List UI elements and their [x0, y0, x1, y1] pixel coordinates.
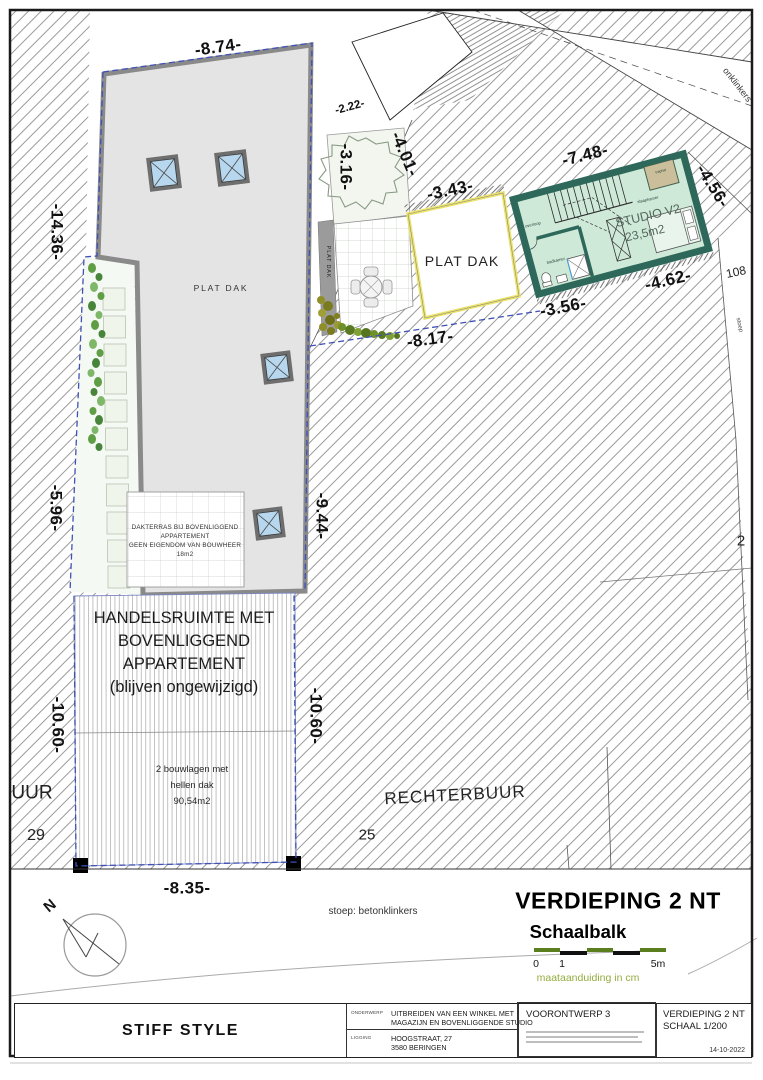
plat-dak-box-label: PLAT DAK [425, 254, 499, 268]
scale-tick-5m: 5m [651, 959, 666, 970]
dim-10-60-right: -10.60- [308, 688, 325, 745]
ligging-text: HOOGSTRAAT, 27 3580 BERINGEN [391, 1034, 452, 1052]
skylight [146, 154, 182, 192]
ligging-label: LIGGING [351, 1035, 372, 1040]
onderwerp-label: ONDERWERP [351, 1010, 383, 1015]
dim-5-96: -5.96- [48, 485, 65, 532]
skylight [214, 149, 250, 187]
dim-3-16: -3.16- [338, 144, 355, 191]
fase-text: VOORONTWERP 3 [526, 1010, 610, 1019]
fine-print-line [526, 1041, 642, 1043]
linkerbuur-label: UUR [11, 784, 52, 803]
plat-dak-strip-label: PLAT DAK [324, 246, 330, 279]
house-number-29: 29 [27, 828, 45, 844]
dakterras-note: DAKTERRAS BIJ BOVENLIGGEND APPARTEMENT G… [120, 523, 250, 559]
dim-14-36: -14.36- [49, 204, 66, 261]
drawing-title: VERDIEPING 2 NT [515, 890, 721, 913]
scale-tick-0: 0 [533, 959, 539, 970]
scale-bar [534, 948, 667, 956]
stoep-note: stoep: betonklinkers [329, 907, 418, 917]
fine-print-line [526, 1031, 644, 1033]
plat-dak-roof-label: PLAT DAK [194, 284, 249, 293]
skylight [252, 506, 286, 540]
sheet-date: 14-10-2022 [663, 1046, 745, 1055]
maataanduiding-note: maataanduiding in cm [537, 973, 640, 984]
plan-sheet: -8.74- -3.16- -2.22- -4.01- -3.43- -7.48… [0, 0, 763, 1080]
scale-tick-1: 1 [559, 959, 565, 970]
skylight [260, 350, 294, 384]
plat-dak-box-shape [404, 184, 519, 318]
sheet-name: VERDIEPING 2 NT [663, 1010, 745, 1019]
fase-box: VOORONTWERP 3 [517, 1002, 656, 1057]
title-block: STIFF STYLE ONDERWERP UITBREIDEN VAN EEN… [14, 1003, 752, 1058]
fine-print-line [526, 1036, 638, 1038]
bouwlagen-note: 2 bouwlagen met hellen dak 90,54m2 [112, 762, 272, 810]
plan-drawing [0, 0, 763, 1080]
dim-10-60-left: -10.60- [50, 697, 67, 754]
firm-name: STIFF STYLE [15, 1004, 346, 1057]
dim-9-44: -9.44- [314, 493, 331, 540]
sheet-scale: SCHAAL 1/200 [663, 1022, 727, 1031]
schaalbalk-label: Schaalbalk [530, 923, 627, 942]
house-number-2: 2 [737, 534, 745, 549]
dim-8-35: -8.35- [164, 880, 211, 897]
onderwerp-text: UITBREIDEN VAN EEN WINKEL MET MAGAZIJN E… [391, 1009, 533, 1027]
handelsruimte-note: HANDELSRUIMTE MET BOVENLIGGEND APPARTEME… [69, 607, 299, 699]
house-number-25: 25 [359, 828, 376, 843]
